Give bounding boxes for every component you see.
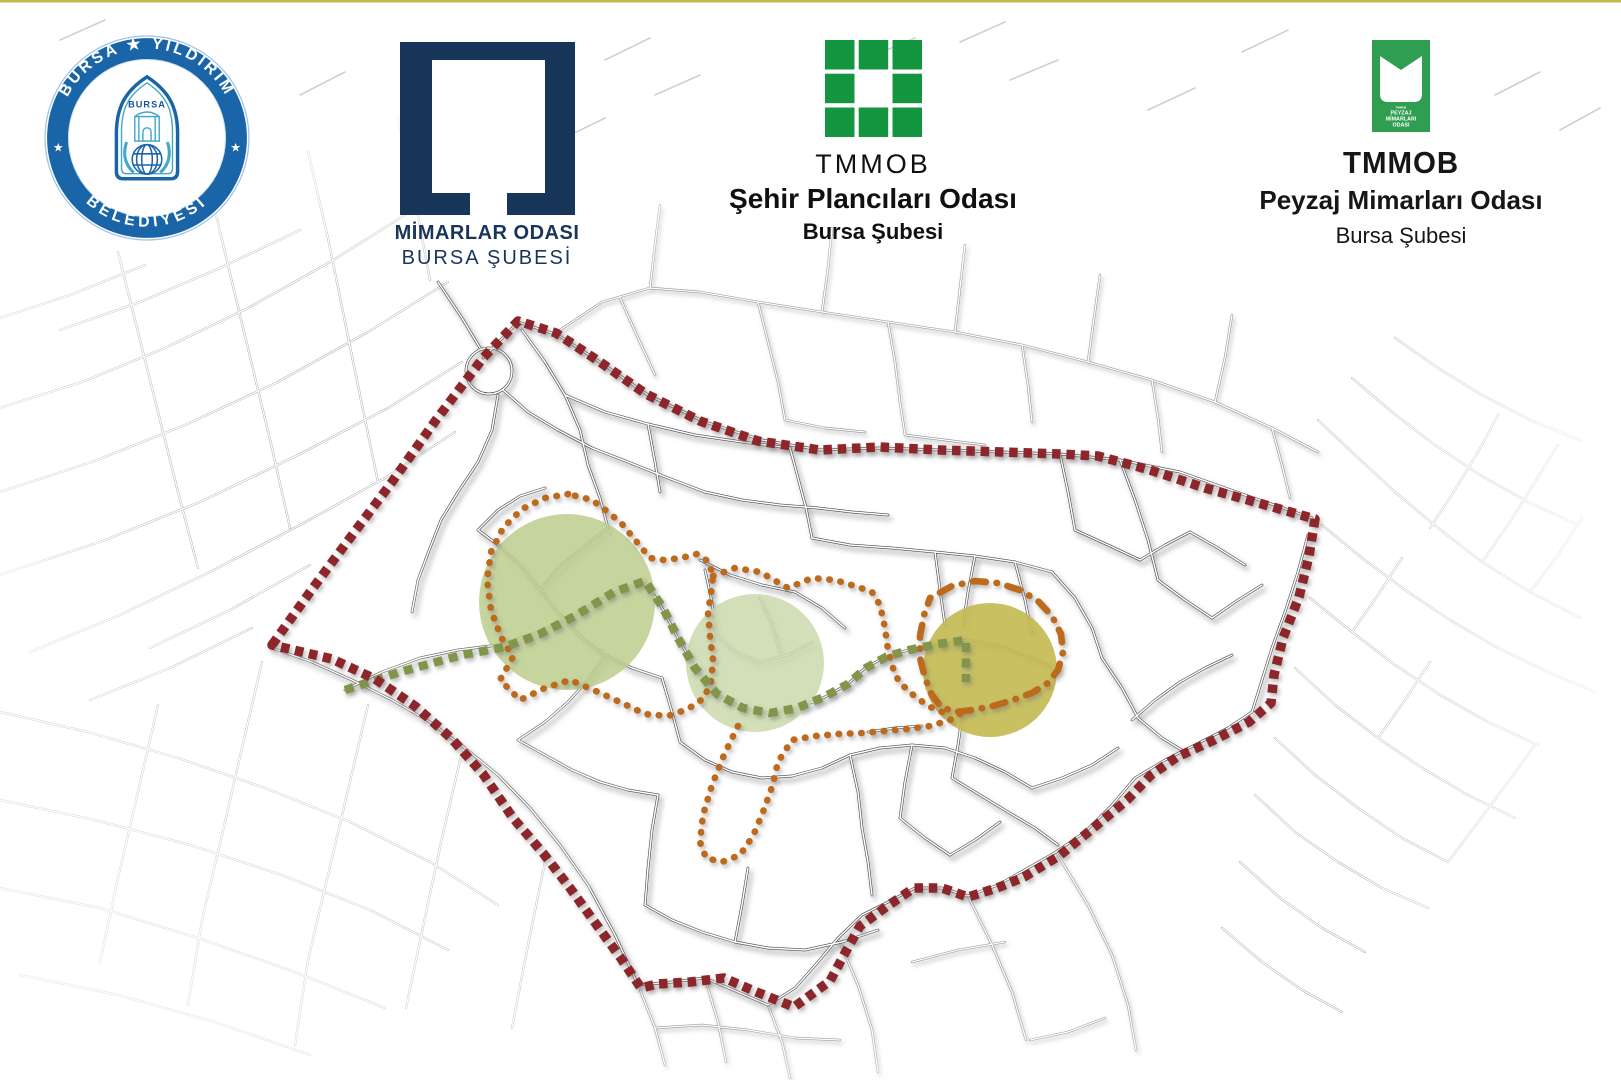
street-segment: [645, 905, 768, 948]
street-segment: [768, 930, 878, 950]
landscape-union-acronym: TMMOB: [1343, 145, 1459, 181]
architects-chamber-name: MİMARLAR ODASI: [395, 222, 580, 245]
street-segment: [912, 942, 1005, 962]
street-segment: [560, 288, 1318, 452]
logo-peyzaj-mimarlari-odasi: TMMOB PEYZAJ MİMARLARI ODASI TMMOB Peyza…: [1236, 40, 1566, 249]
planners-chamber-emblem: [825, 40, 922, 137]
street-segment: [735, 868, 748, 942]
grid-cell: [858, 40, 888, 70]
landscape-chamber-branch: Bursa Şubesi: [1336, 223, 1467, 249]
focus-circle-west: [479, 514, 655, 690]
emblem-inner-window: [432, 60, 545, 193]
street-segment: [483, 322, 1312, 518]
street-segment: [600, 782, 658, 795]
seal-globe: [132, 145, 162, 175]
street-segment: [785, 420, 865, 432]
planners-chamber-name: Şehir Plancıları Odası: [729, 183, 1017, 215]
seal-star-left: ★: [53, 140, 64, 154]
street-segment: [905, 435, 985, 445]
street-segment: [662, 678, 680, 742]
grid-cell: [892, 108, 922, 138]
poster-canvas: BURSA ★ YILDIRIM BELEDİYESİ ★ ★ BURSA: [0, 0, 1621, 1080]
street-segment: [1102, 658, 1138, 718]
street-segment: [1052, 572, 1102, 658]
seal-city-label: BURSA: [128, 99, 166, 109]
book-badge-line: TMMOB: [1396, 106, 1407, 110]
top-border-line: [0, 0, 1621, 3]
street-segment: [1272, 428, 1290, 498]
fade-east: [1330, 250, 1621, 1080]
logo-bursa-yildirim-belediyesi: BURSA ★ YILDIRIM BELEDİYESİ ★ ★ BURSA: [42, 34, 252, 242]
street-segment: [645, 905, 768, 948]
street-segment: [888, 322, 905, 435]
street-segment: [1056, 778, 1135, 852]
emblem-bottom-slot: [470, 192, 507, 215]
seal-star-right: ★: [230, 140, 241, 154]
street-segment: [850, 745, 945, 755]
architects-chamber-emblem: [400, 42, 575, 215]
street-segment: [560, 288, 1318, 452]
street-segment: [1222, 928, 1342, 1012]
grid-cell: [892, 40, 922, 70]
street-segment: [792, 755, 850, 776]
grid-cell: [825, 40, 855, 70]
book-badge-line: MİMARLARI: [1386, 116, 1417, 123]
grid-cell: [825, 74, 855, 104]
street-segment: [1052, 572, 1102, 658]
orange-dotted-lower-zigzag: [700, 712, 963, 862]
street-segment: [1222, 928, 1342, 1012]
street-segment: [850, 755, 862, 828]
street-segment: [483, 322, 1312, 518]
street-segment: [648, 424, 660, 492]
fade-west: [0, 250, 210, 680]
grid-cell: [825, 108, 855, 138]
landscape-architects-emblem: TMMOB PEYZAJ MİMARLARI ODASI: [1372, 40, 1430, 132]
planners-chamber-branch: Bursa Şubesi: [803, 219, 944, 245]
grid-cell: [858, 108, 888, 138]
logo-mimarlar-odasi: MİMARLAR ODASI BURSA ŞUBESİ: [382, 42, 592, 270]
street-segment: [1212, 585, 1262, 618]
logo-sehir-plancilari-odasi: TMMOB Şehir Plancıları Odası Bursa Şubes…: [708, 40, 1038, 245]
street-segment: [1138, 718, 1185, 752]
street-segment: [968, 852, 1056, 896]
street-segment: [1008, 812, 1058, 845]
street-segment: [1075, 530, 1140, 560]
fade-south: [560, 1010, 1340, 1080]
street-segment: [1032, 748, 1118, 788]
street-segment: [1056, 778, 1135, 852]
street-segment: [430, 395, 498, 548]
street-segment: [1132, 682, 1180, 720]
planners-union-acronym: TMMOB: [815, 149, 931, 180]
street-segment: [1190, 532, 1245, 565]
street-segment: [620, 298, 655, 375]
municipal-seal: BURSA ★ YILDIRIM BELEDİYESİ ★ ★ BURSA: [43, 34, 251, 242]
focus-circle-east: [923, 603, 1057, 737]
street-segment: [1060, 454, 1075, 530]
street-segment: [1215, 315, 1232, 402]
street-segment: [1032, 748, 1118, 788]
grid-cell: [892, 74, 922, 104]
architects-chamber-branch: BURSA ŞUBESİ: [402, 247, 573, 270]
street-segment: [1120, 460, 1158, 580]
street-segment: [818, 508, 888, 515]
landscape-chamber-name: Peyzaj Mimarları Odası: [1259, 185, 1542, 216]
book-badge-line: ODASI: [1392, 123, 1410, 129]
street-segment: [952, 778, 1008, 812]
